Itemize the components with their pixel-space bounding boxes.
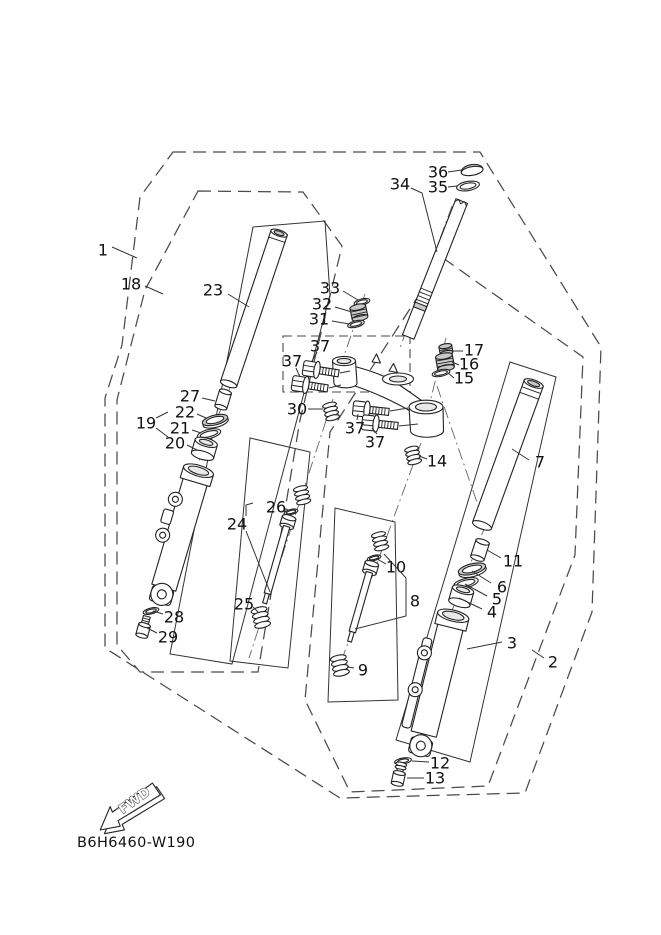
bushing-27 [214,388,232,411]
steering-cap [460,163,484,177]
bolt-29 [135,615,152,639]
frame-damper-rod-left [230,438,310,668]
callout-leader-27 [202,398,215,401]
fwd-arrow: FWD [91,780,170,839]
callout-label-30: 30 [287,400,307,419]
callout-leader-18 [145,286,163,294]
callout-label-31: 31 [309,310,329,329]
outer-tube-right [393,604,470,760]
gasket-28 [143,606,160,615]
callout-label-37: 37 [282,352,302,371]
callout-leader-22 [197,414,206,418]
callout-label-9: 9 [358,661,368,680]
oil-seal-6 [457,561,487,580]
bolt-13 [391,761,408,787]
callout-label-35: 35 [428,178,448,197]
callout-label-19: 19 [136,414,156,433]
callout-label-8: 8 [410,592,420,611]
callout-leader-34 [411,188,437,252]
callout-label-11: 11 [503,552,523,571]
diagram-code: B6H6460-W190 [77,835,195,851]
callout-label-37: 37 [365,433,385,452]
spring-30 [322,401,340,422]
callout-leader-35 [448,186,457,187]
bushing-32 [349,303,368,323]
callout-leader-23 [228,294,249,307]
callout-label-34: 34 [390,175,410,194]
callout-leader-8 [355,616,406,629]
oil-lock-spring-9 [330,654,350,678]
callout-leader-36 [448,170,462,172]
parts-diagram-page: 1182333323134363517161537373037371472722… [0,0,661,935]
callout-leader-11 [487,550,501,558]
callout-leader-2 [532,650,544,658]
rebound-spring-right [371,531,389,552]
oil-seal-22 [201,412,229,430]
outer-tube-left [137,459,215,609]
callout-label-1: 1 [98,241,108,260]
callout-leader-19 [156,428,168,437]
callout-label-3: 3 [507,634,517,653]
inner-tube-left [220,227,289,389]
callout-leader-21 [192,430,201,433]
callout-label-2: 2 [548,653,558,672]
callout-label-29: 29 [158,628,178,647]
steering-stem [402,198,467,339]
callout-label-23: 23 [203,281,223,300]
washer-15 [432,368,451,378]
callout-leader-19 [156,412,168,418]
callout-leader-3 [467,642,502,649]
callout-label-24: 24 [227,515,247,534]
callout-label-13: 13 [425,769,445,788]
callout-leader-33 [343,291,358,300]
washer-31 [347,319,365,329]
callout-label-4: 4 [487,603,497,622]
steering-washer [456,179,480,192]
callout-label-15: 15 [454,369,474,388]
boundary-right-fork-2 [305,258,583,792]
callout-label-37: 37 [310,337,330,356]
callout-leader-24 [246,531,270,592]
callout-label-14: 14 [427,452,447,471]
damper-rod-8 [343,559,379,643]
pinch-bolt-37-d [361,414,399,435]
callout-label-18: 18 [121,275,141,294]
callout-leader-12 [412,761,429,762]
rebound-spring-left [293,485,311,506]
front-fork-exploded-diagram: 1182333323134363517161537373037371472722… [0,0,661,935]
callout-leader-10 [377,559,386,564]
callout-label-25: 25 [234,595,254,614]
callout-label-7: 7 [535,453,545,472]
callout-leader-31 [332,321,349,324]
damper-rod-24 [258,513,297,605]
callout-label-26: 26 [266,498,286,517]
callout-label-37: 37 [345,419,365,438]
callout-label-28: 28 [164,608,184,627]
